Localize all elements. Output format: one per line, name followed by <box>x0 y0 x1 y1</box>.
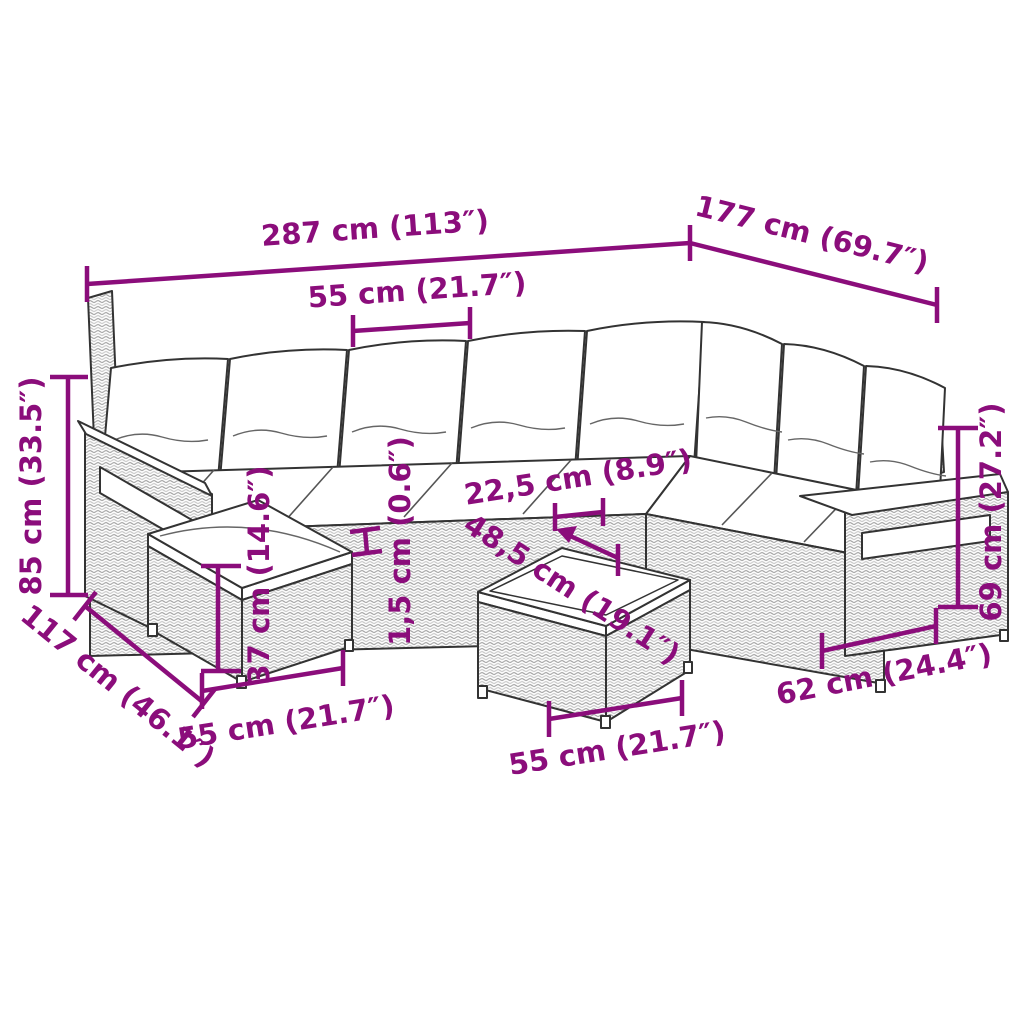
dim-label-total-height: 85 cm (33.5″) <box>14 377 48 596</box>
sofa-set-illustration <box>0 0 1024 1024</box>
dim-label-stool-height: 37 cm (14.6″) <box>242 466 276 685</box>
dim-line-total-height <box>50 377 88 595</box>
dim-label-cushion-gap: 1,5 cm (0.6″) <box>383 436 417 646</box>
product-dimension-diagram: 287 cm (113″) 177 cm (69.7″) 55 cm (21.7… <box>0 0 1024 1024</box>
dim-label-armrest-height: 69 cm (27.2″) <box>974 403 1008 622</box>
